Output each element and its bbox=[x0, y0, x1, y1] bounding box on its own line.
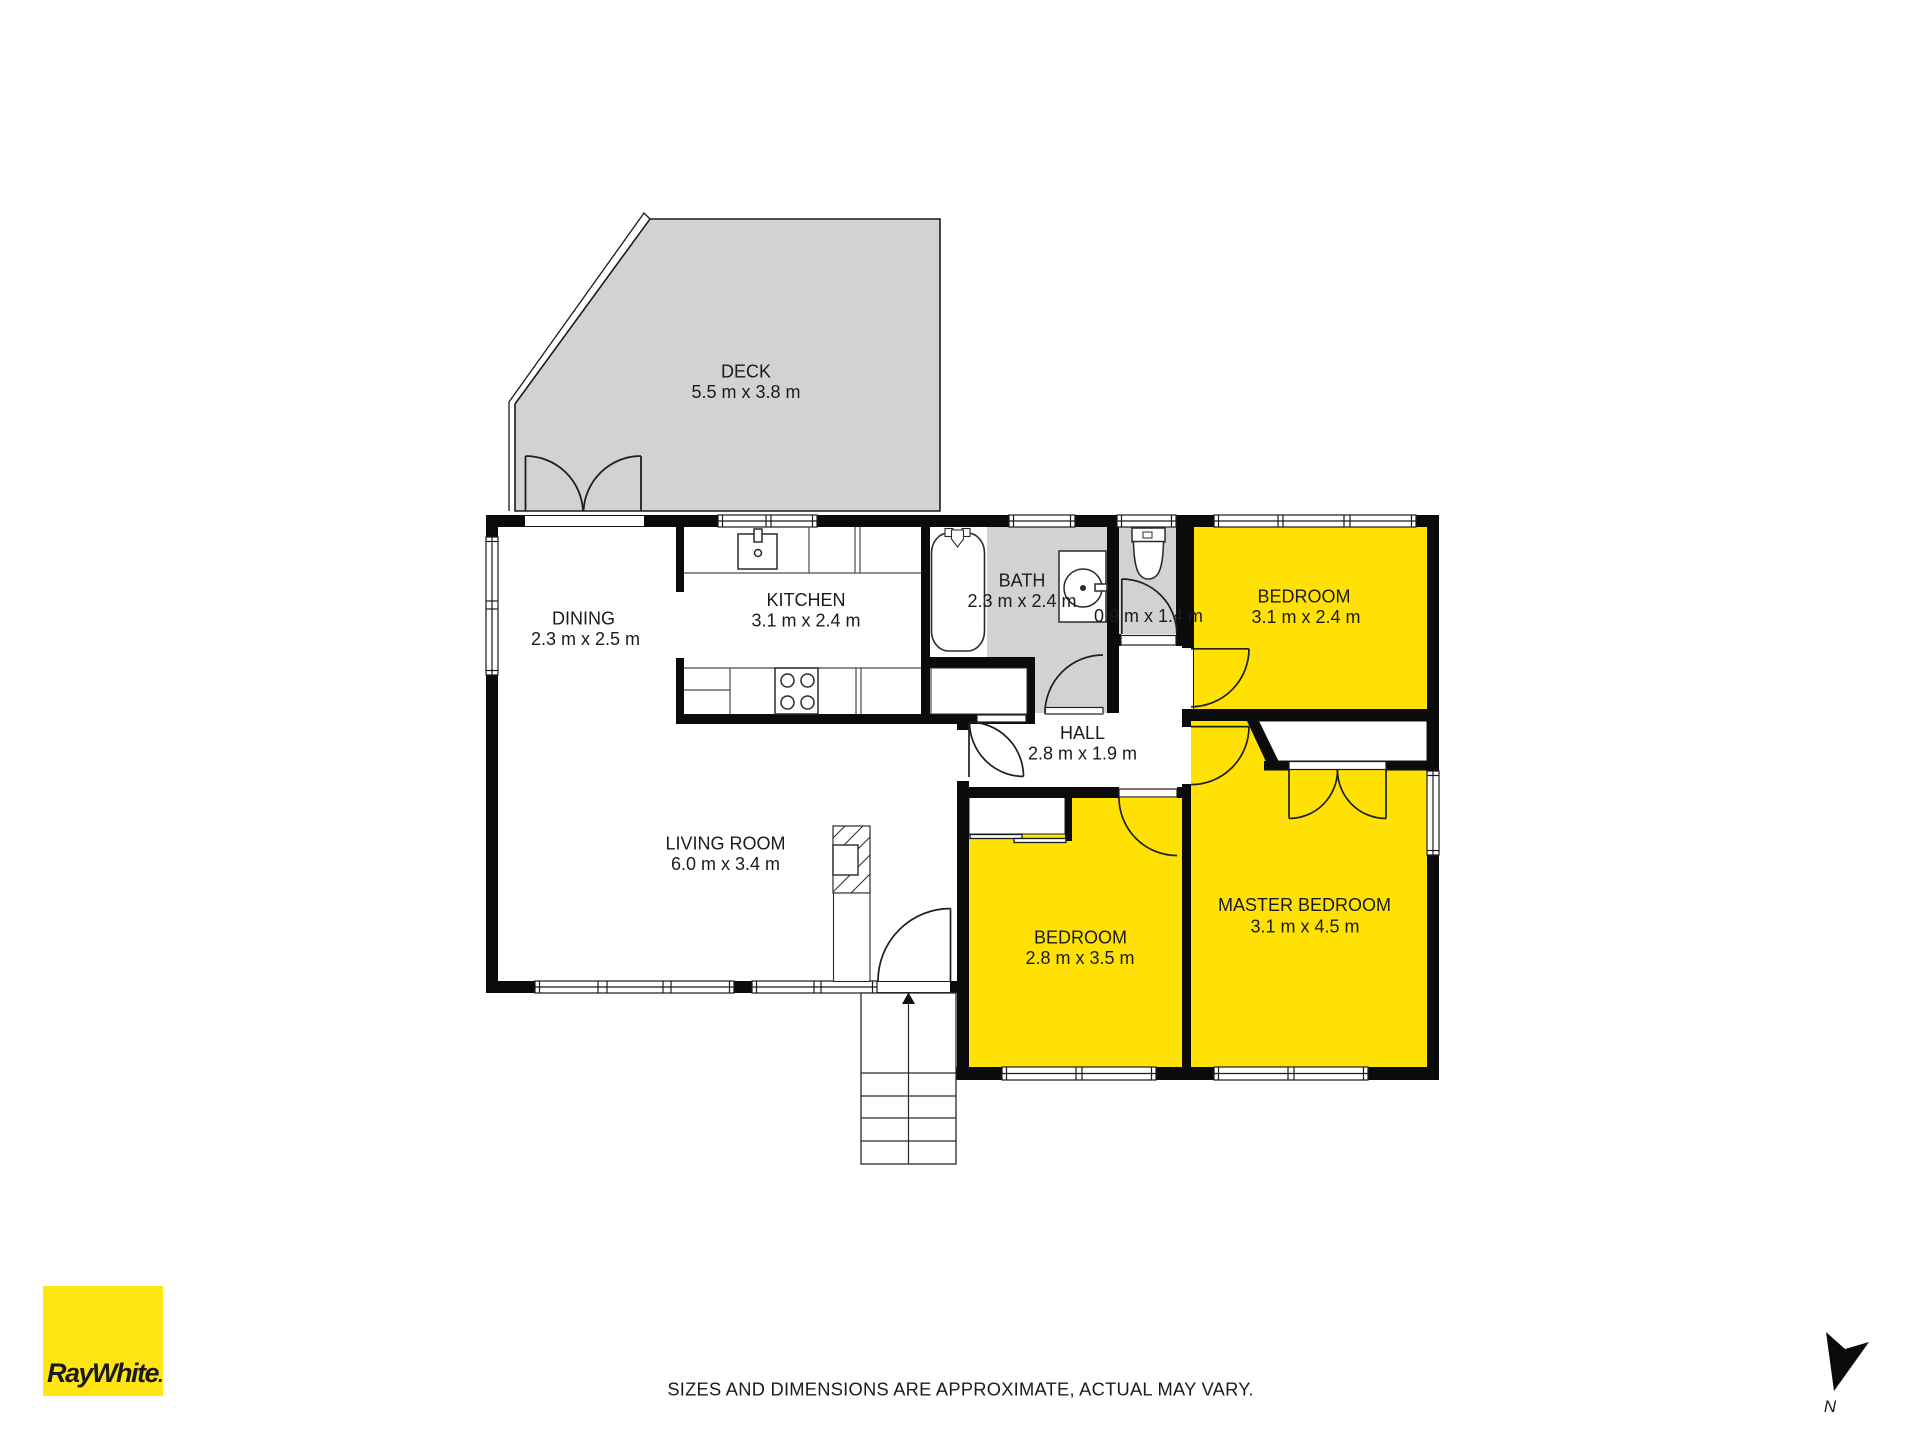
svg-text:LIVING ROOM: LIVING ROOM bbox=[665, 834, 785, 854]
svg-text:RayWhite.: RayWhite. bbox=[47, 1358, 162, 1388]
svg-text:3.1 m x 2.4 m: 3.1 m x 2.4 m bbox=[1251, 607, 1360, 627]
svg-text:HALL: HALL bbox=[1060, 723, 1105, 743]
svg-text:SIZES AND DIMENSIONS ARE APPRO: SIZES AND DIMENSIONS ARE APPROXIMATE, AC… bbox=[667, 1379, 1253, 1400]
svg-text:2.3 m x 2.4 m: 2.3 m x 2.4 m bbox=[967, 591, 1076, 611]
svg-text:2.3 m x 2.5 m: 2.3 m x 2.5 m bbox=[531, 629, 640, 649]
svg-text:5.5 m x 3.8 m: 5.5 m x 3.8 m bbox=[691, 382, 800, 402]
svg-text:N: N bbox=[1824, 1397, 1837, 1416]
svg-text:DINING: DINING bbox=[552, 609, 615, 629]
svg-text:KITCHEN: KITCHEN bbox=[766, 590, 845, 610]
svg-text:BATH: BATH bbox=[999, 571, 1046, 591]
svg-text:MASTER BEDROOM: MASTER BEDROOM bbox=[1218, 895, 1391, 915]
svg-text:3.1 m x 4.5 m: 3.1 m x 4.5 m bbox=[1250, 917, 1359, 937]
svg-text:2.8 m x 3.5 m: 2.8 m x 3.5 m bbox=[1025, 948, 1134, 968]
svg-text:DECK: DECK bbox=[721, 362, 771, 382]
svg-text:BEDROOM: BEDROOM bbox=[1034, 928, 1127, 948]
svg-text:3.1 m x 2.4 m: 3.1 m x 2.4 m bbox=[751, 611, 860, 631]
svg-text:BEDROOM: BEDROOM bbox=[1257, 587, 1350, 607]
svg-text:0.9 m x 1.4 m: 0.9 m x 1.4 m bbox=[1094, 606, 1203, 626]
svg-text:2.8 m x 1.9 m: 2.8 m x 1.9 m bbox=[1028, 744, 1137, 764]
svg-text:6.0 m x 3.4 m: 6.0 m x 3.4 m bbox=[671, 854, 780, 874]
